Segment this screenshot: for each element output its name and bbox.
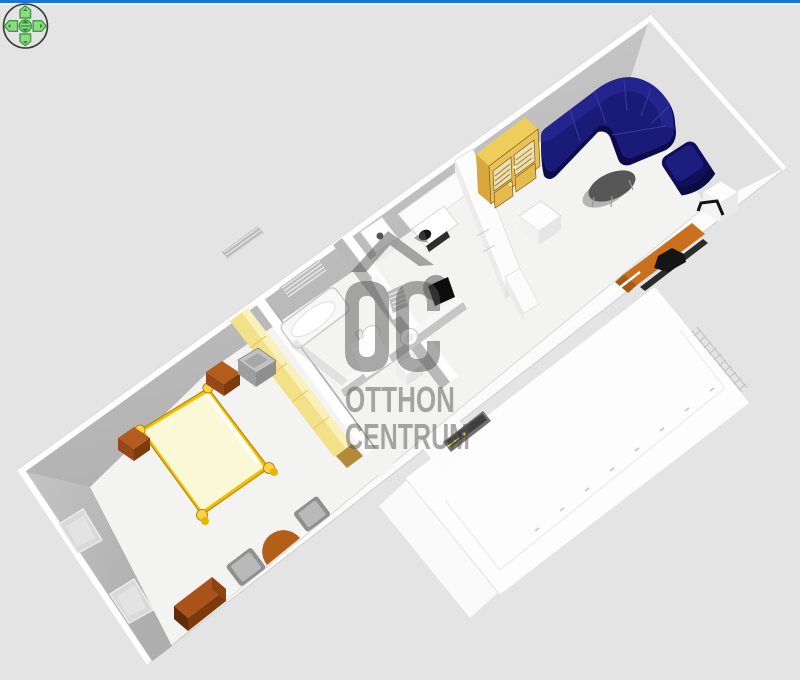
svg-text:OTTHON: OTTHON	[345, 379, 455, 420]
svg-text:CENTRUM: CENTRUM	[345, 416, 470, 457]
